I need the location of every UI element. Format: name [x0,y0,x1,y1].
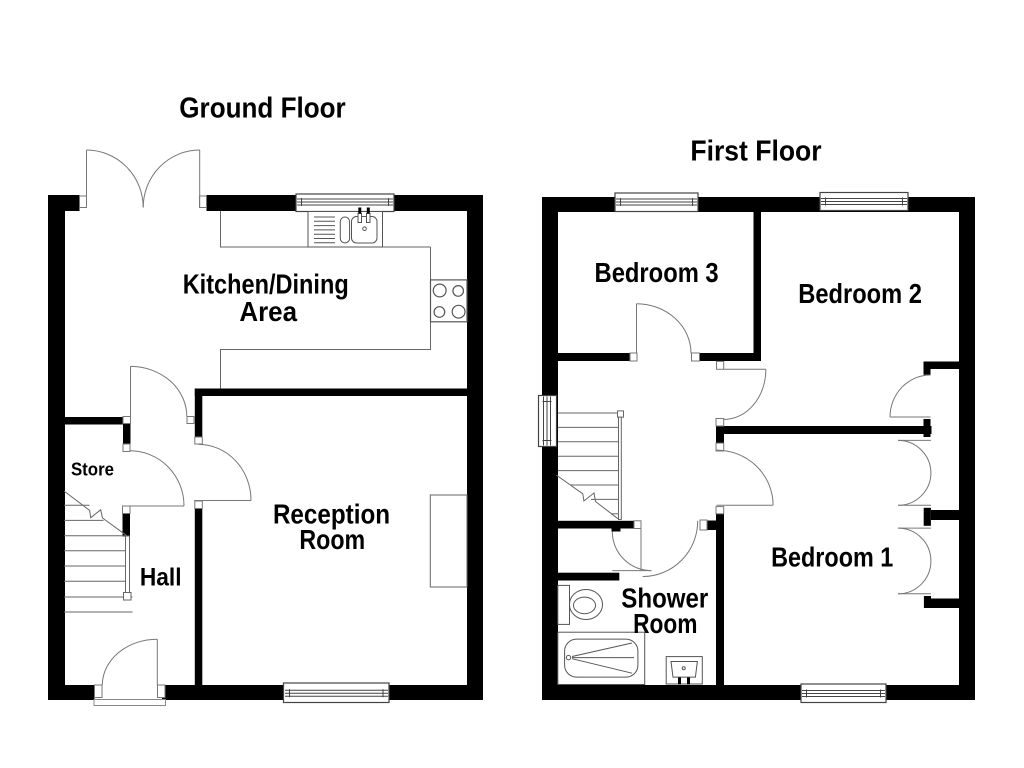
svg-text:Bedroom 1: Bedroom 1 [771,542,893,573]
svg-text:Room: Room [299,524,365,555]
svg-text:Bedroom 3: Bedroom 3 [595,257,719,288]
svg-text:Hall: Hall [140,564,182,592]
svg-text:Bedroom 2: Bedroom 2 [798,278,922,309]
svg-text:Room: Room [633,608,697,639]
svg-text:First Floor: First Floor [690,135,821,167]
svg-text:Store: Store [71,460,114,480]
svg-text:Ground Floor: Ground Floor [179,93,345,125]
svg-text:Area: Area [239,296,297,327]
svg-text:Kitchen/Dining: Kitchen/Dining [183,268,349,299]
